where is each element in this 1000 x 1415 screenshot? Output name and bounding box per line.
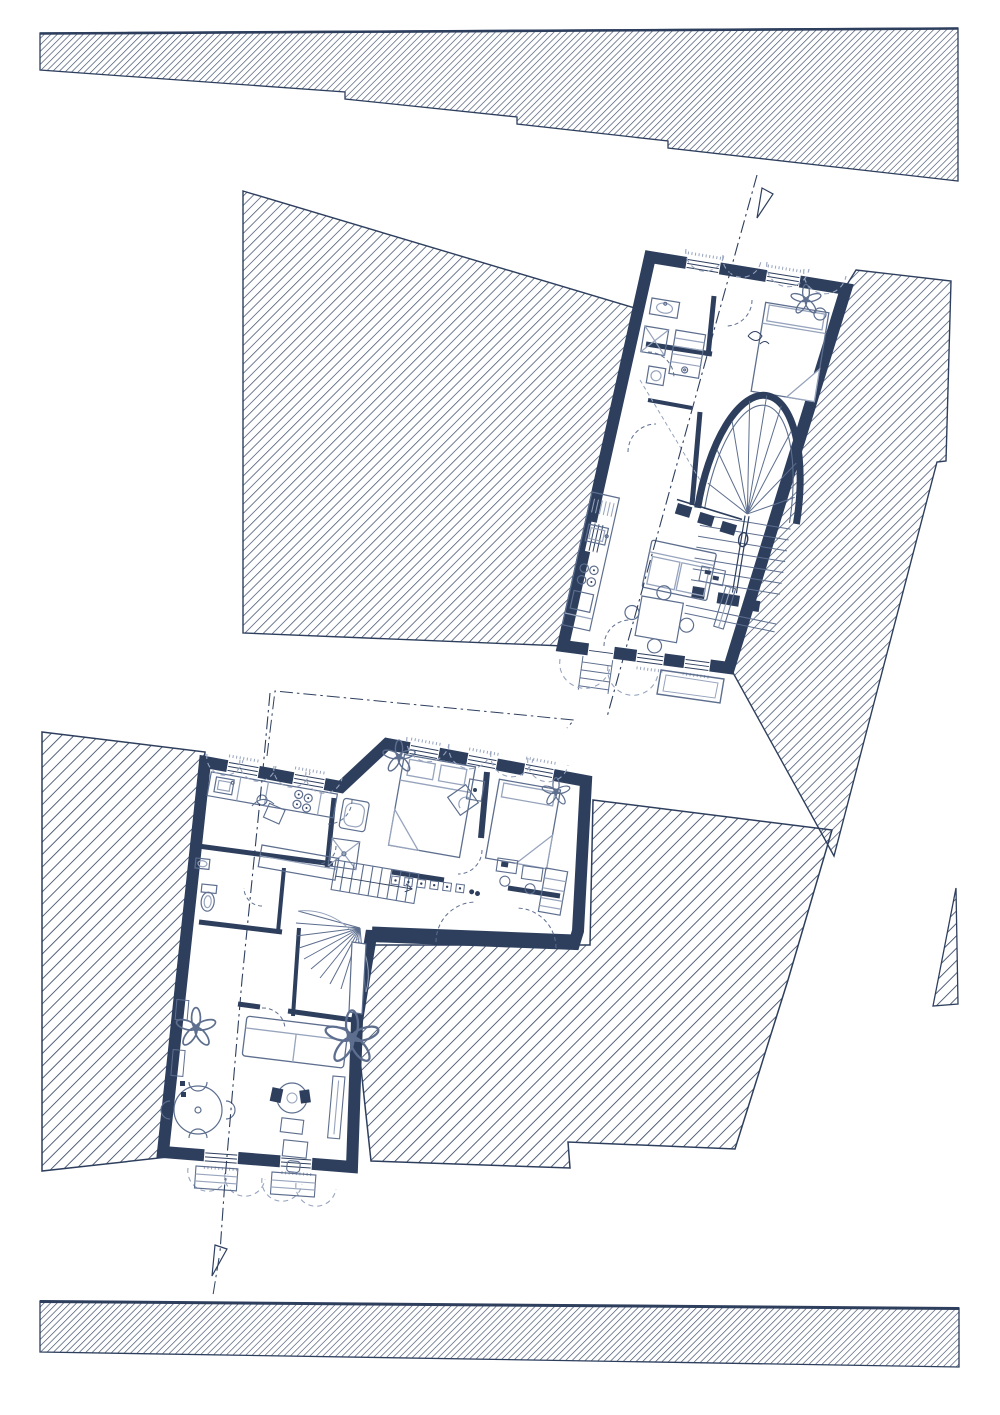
site-plan-drawing <box>0 0 1000 1415</box>
entry-door-gap <box>587 642 615 661</box>
boundary-band-bottom <box>40 1301 959 1367</box>
wing-bottom-wall <box>372 933 574 941</box>
section-arrow <box>757 188 773 218</box>
window <box>635 649 665 671</box>
section-arrow <box>212 1245 227 1276</box>
desk-chair-dark <box>299 1089 311 1103</box>
site-context <box>40 28 959 1367</box>
upper-entry-steps <box>578 656 612 694</box>
parcel-sliver-right <box>933 888 958 1006</box>
lamp <box>473 788 477 792</box>
drawing-sheet <box>0 0 1000 1415</box>
boundary-band-top <box>40 28 958 181</box>
